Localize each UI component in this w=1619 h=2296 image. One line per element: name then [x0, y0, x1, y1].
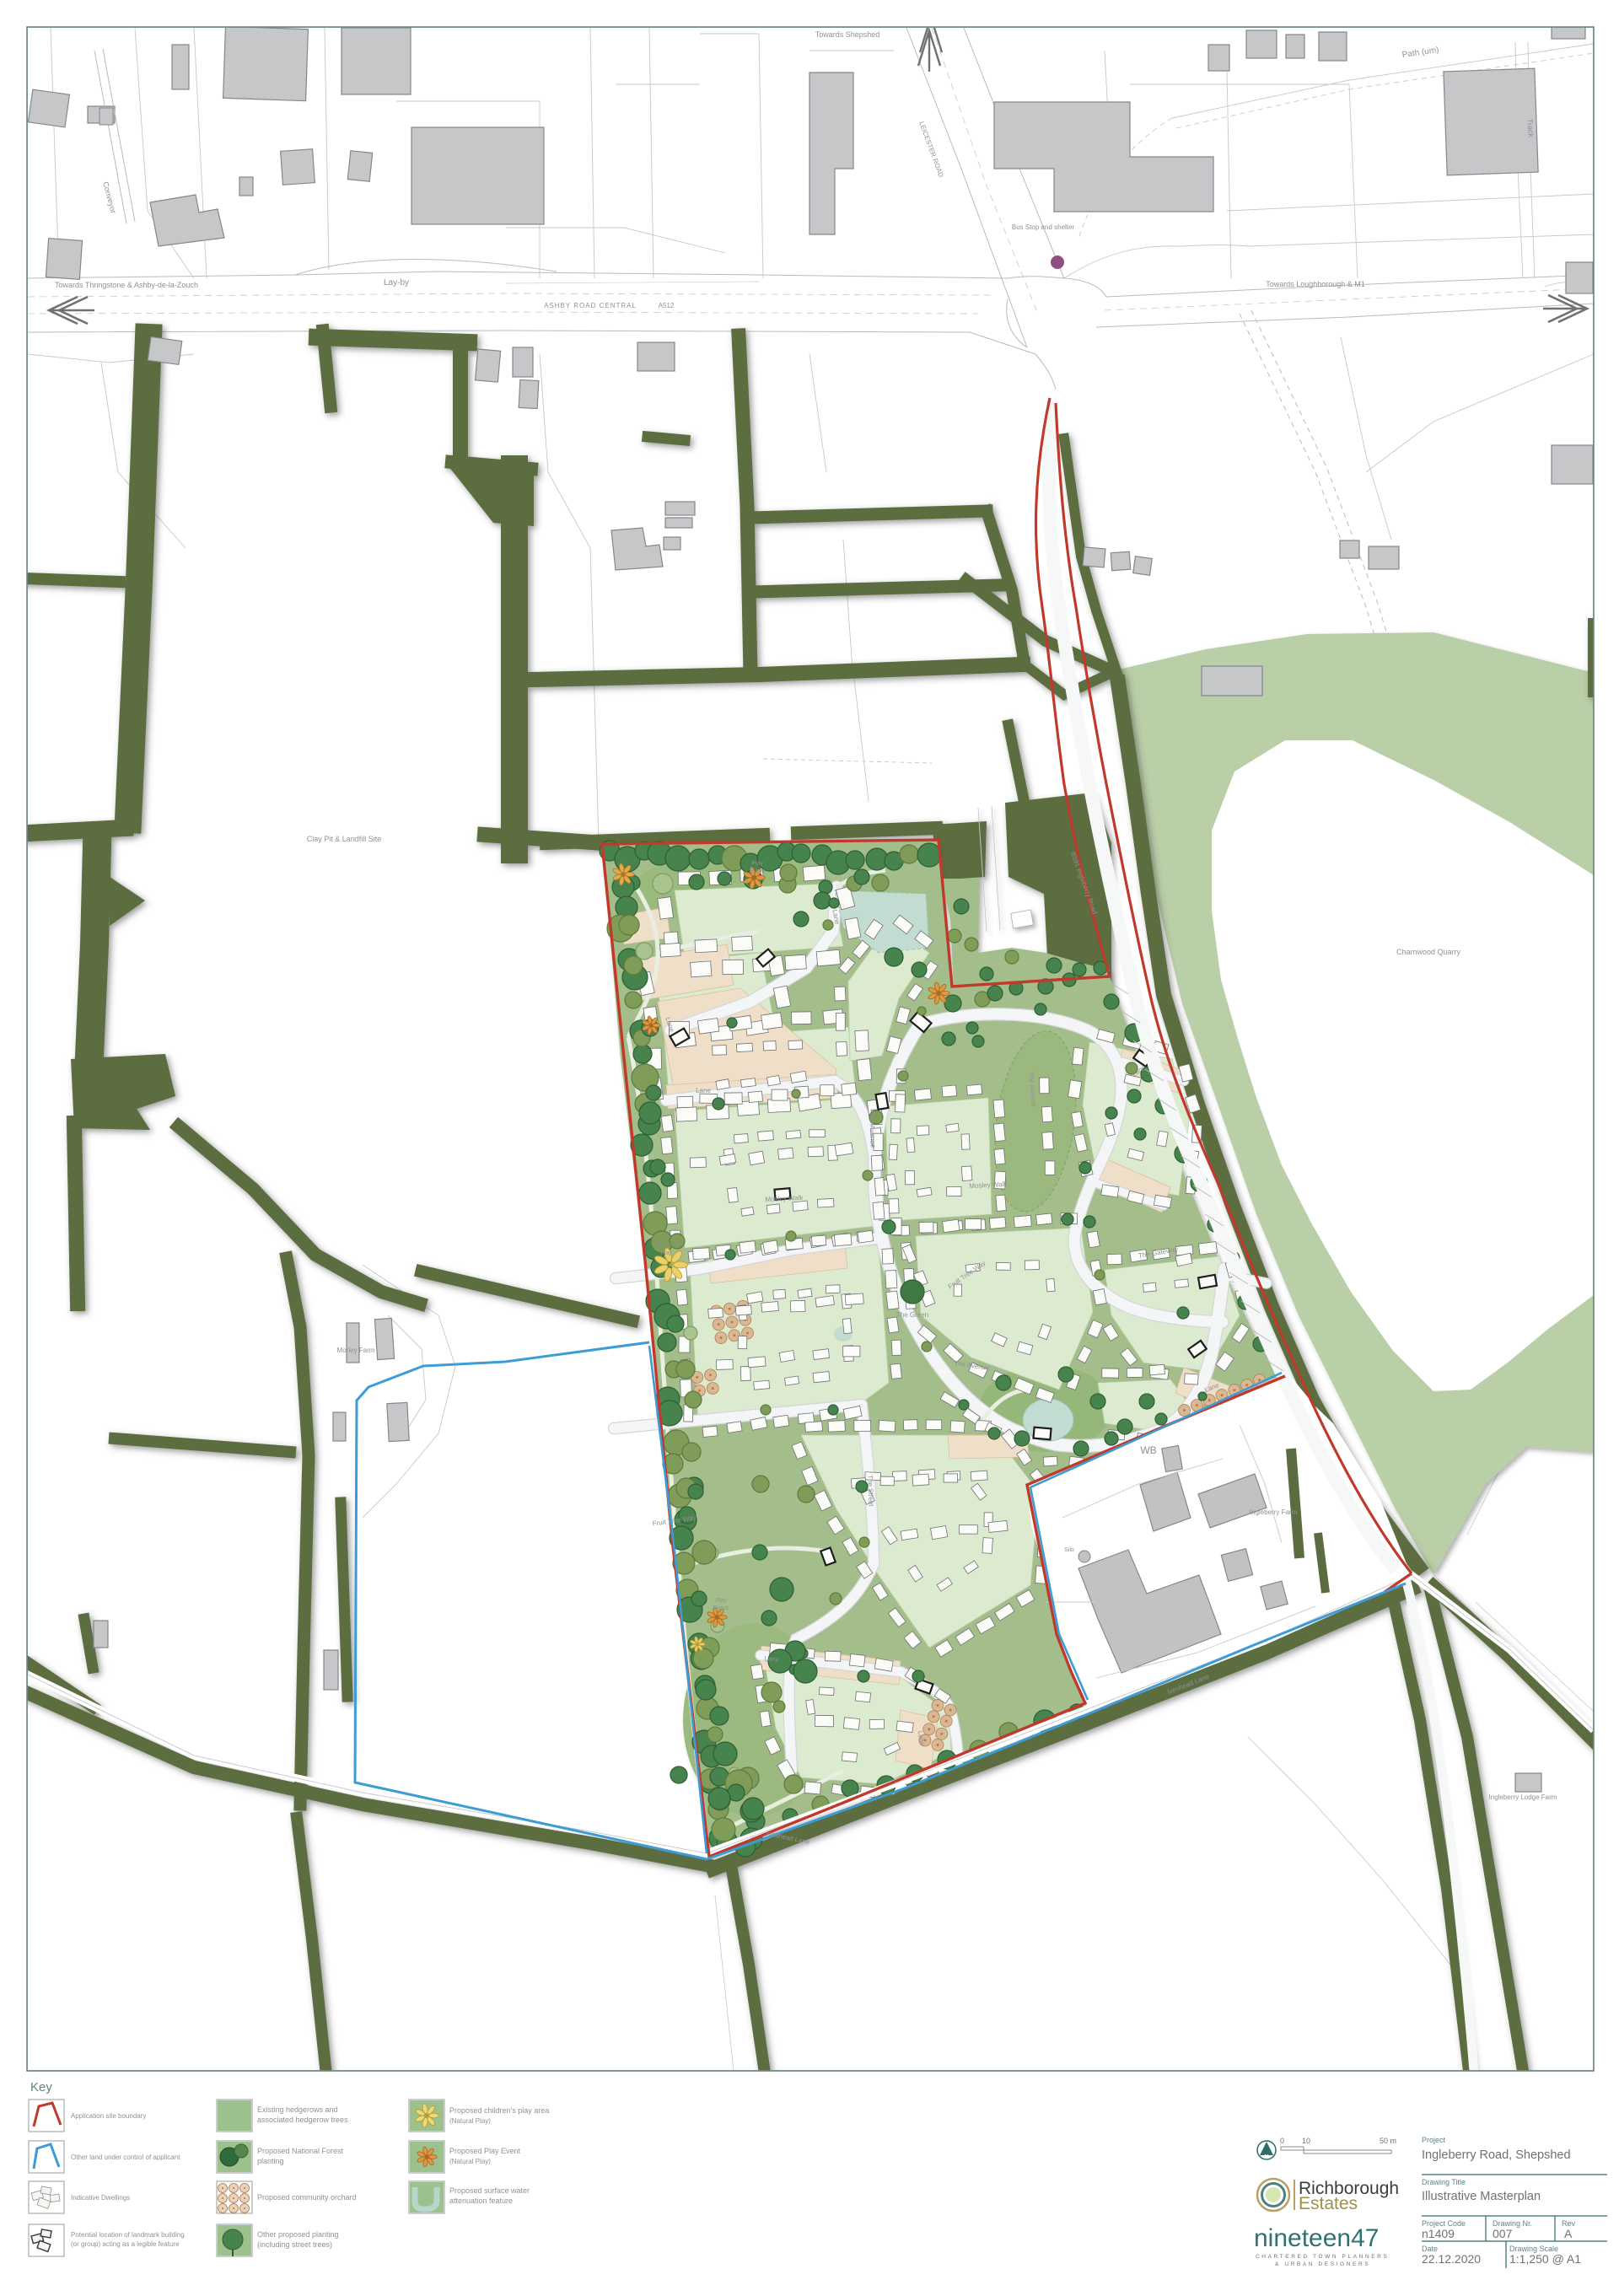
- svg-text:The Street: The Street: [866, 1475, 874, 1507]
- svg-text:Proposed National Forest: Proposed National Forest: [257, 2147, 344, 2155]
- svg-text:Existing hedgerows and: Existing hedgerows and: [257, 2105, 338, 2114]
- svg-text:1:1,250 @ A1: 1:1,250 @ A1: [1509, 2252, 1581, 2266]
- svg-text:50 m: 50 m: [1380, 2137, 1396, 2145]
- svg-text:A512: A512: [659, 302, 675, 309]
- svg-text:WB: WB: [1140, 1444, 1156, 1456]
- svg-text:Track: Track: [1525, 118, 1536, 137]
- svg-text:Ingleberry Road, Shepshed: Ingleberry Road, Shepshed: [1422, 2148, 1571, 2162]
- svg-text:Proposed community orchard: Proposed community orchard: [257, 2193, 357, 2202]
- svg-text:Morley Farm: Morley Farm: [337, 1347, 375, 1354]
- svg-text:Potential location of landmark: Potential location of landmark building: [71, 2231, 185, 2239]
- svg-text:Illustrative Masterplan: Illustrative Masterplan: [1422, 2190, 1541, 2203]
- svg-text:(Natural Play): (Natural Play): [449, 2117, 491, 2125]
- svg-text:n1409: n1409: [1422, 2227, 1455, 2240]
- svg-text:Application site boundary: Application site boundary: [71, 2112, 146, 2120]
- svg-text:CHARTERED TOWN PLANNERS: CHARTERED TOWN PLANNERS: [1256, 2254, 1389, 2260]
- svg-text:Other proposed planting: Other proposed planting: [257, 2230, 339, 2239]
- svg-text:Lane: Lane: [696, 1087, 711, 1094]
- svg-text:Towards Shepshed: Towards Shepshed: [815, 30, 880, 39]
- svg-text:Play: Play: [660, 1250, 672, 1256]
- svg-text:007: 007: [1493, 2227, 1513, 2240]
- svg-text:Bus Stop and shelter: Bus Stop and shelter: [1012, 223, 1075, 231]
- svg-text:Towards Loughborough & M1: Towards Loughborough & M1: [1266, 280, 1365, 288]
- svg-text:ASHBY ROAD CENTRAL: ASHBY ROAD CENTRAL: [544, 302, 637, 309]
- svg-text:A: A: [1564, 2227, 1573, 2240]
- svg-text:Play: Play: [751, 861, 763, 867]
- svg-text:0: 0: [1280, 2137, 1284, 2145]
- svg-text:Lay-by: Lay-by: [384, 278, 409, 288]
- svg-text:Proposed surface water: Proposed surface water: [449, 2186, 530, 2195]
- svg-text:Lane: Lane: [764, 1654, 780, 1664]
- svg-text:(Natural Play): (Natural Play): [449, 2158, 491, 2165]
- svg-text:Ingleberry Lodge Farm: Ingleberry Lodge Farm: [1489, 1793, 1557, 1801]
- svg-text:Charnwood Quarry: Charnwood Quarry: [1396, 948, 1461, 956]
- svg-text:Indicative Dwellings: Indicative Dwellings: [71, 2194, 130, 2202]
- svg-text:The Avenue: The Avenue: [868, 1111, 876, 1148]
- svg-text:Play: Play: [715, 1598, 727, 1604]
- svg-text:Project: Project: [1422, 2136, 1446, 2144]
- svg-text:Towards Thringstone & Ashby-de: Towards Thringstone & Ashby-de-la-Zouch: [55, 281, 198, 289]
- svg-text:Silo: Silo: [1064, 1547, 1074, 1553]
- svg-text:Estates: Estates: [1299, 2194, 1358, 2213]
- svg-text:The Green: The Green: [896, 1311, 928, 1319]
- svg-text:Clay Pit & Landfill Site: Clay Pit & Landfill Site: [307, 835, 382, 843]
- svg-text:10: 10: [1302, 2137, 1310, 2145]
- svg-text:Proposed children's play area: Proposed children's play area: [449, 2106, 549, 2115]
- svg-text:(including street trees): (including street trees): [257, 2240, 332, 2249]
- svg-text:Drawing Title: Drawing Title: [1422, 2178, 1466, 2186]
- svg-text:22.12.2020: 22.12.2020: [1422, 2252, 1481, 2266]
- svg-text:Ingleberry Farm: Ingleberry Farm: [1250, 1508, 1298, 1516]
- svg-text:Event: Event: [713, 1605, 729, 1611]
- svg-text:Event: Event: [750, 868, 765, 874]
- svg-text:Other land under control of ap: Other land under control of applicant: [71, 2154, 180, 2161]
- svg-text:Key: Key: [30, 2080, 52, 2094]
- svg-text:planting: planting: [257, 2157, 284, 2165]
- svg-text:N: N: [1264, 2154, 1268, 2160]
- svg-text:& URBAN DESIGNERS: & URBAN DESIGNERS: [1275, 2261, 1370, 2267]
- svg-text:attenuation feature: attenuation feature: [449, 2197, 513, 2205]
- svg-text:Proposed Play Event: Proposed Play Event: [449, 2147, 521, 2155]
- svg-text:Children's: Children's: [654, 1242, 680, 1248]
- svg-text:associated hedgerow trees: associated hedgerow trees: [257, 2116, 348, 2124]
- svg-text:nineteen47: nineteen47: [1254, 2224, 1379, 2252]
- svg-text:(or group) acting as a legible: (or group) acting as a legible feature: [71, 2240, 180, 2248]
